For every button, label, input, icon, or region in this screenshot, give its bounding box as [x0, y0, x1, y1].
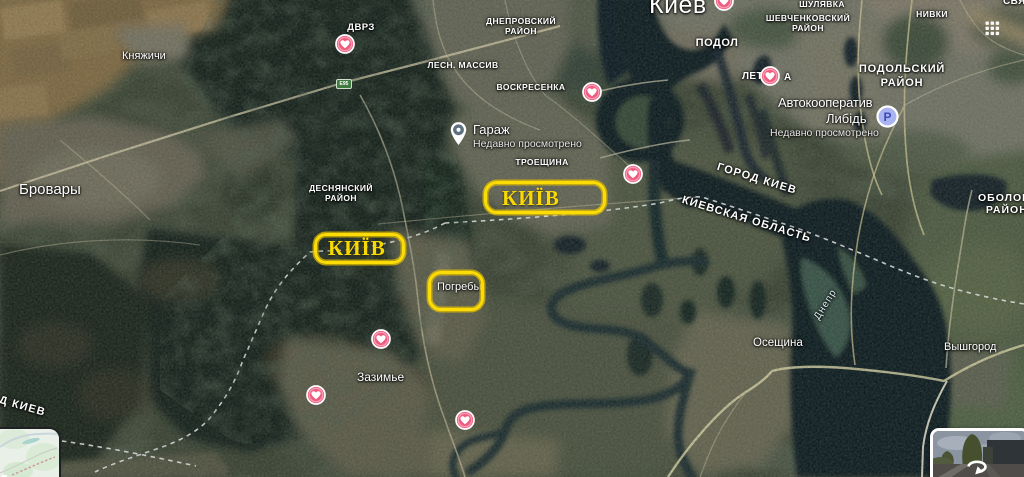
svg-text:P: P	[883, 110, 891, 124]
